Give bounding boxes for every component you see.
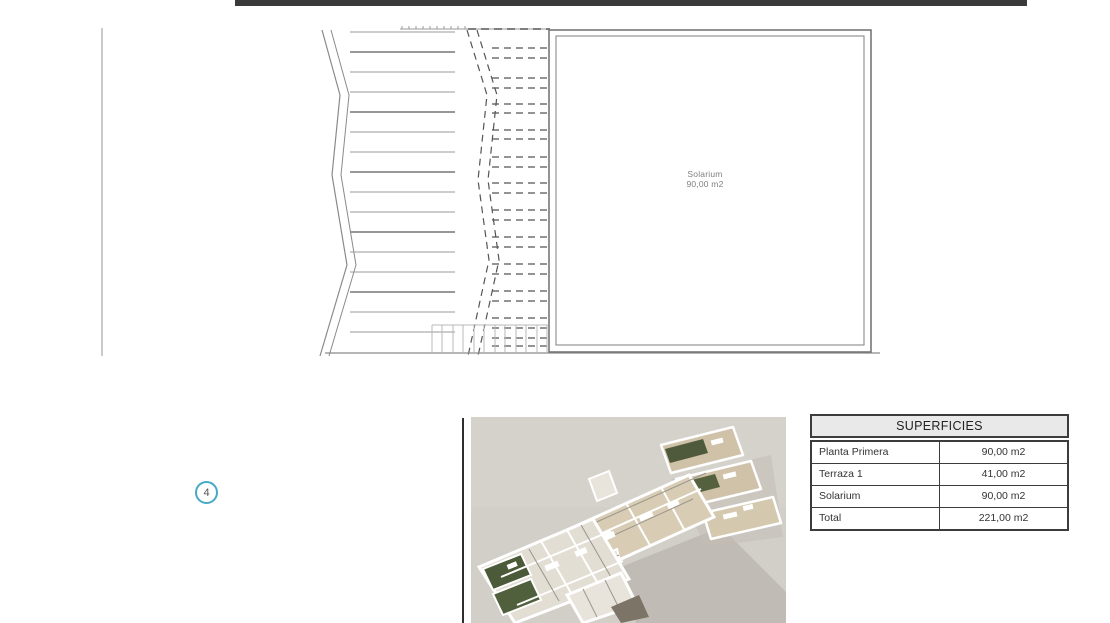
surfaces-table-title: SUPERFICIES bbox=[810, 414, 1069, 438]
render-divider-line bbox=[462, 418, 464, 623]
table-row: Planta Primera 90,00 m2 bbox=[812, 442, 1067, 464]
floor-plan-drawing bbox=[0, 0, 1110, 380]
hidden-roof-edge-outer bbox=[467, 30, 489, 356]
row-value: 90,00 m2 bbox=[940, 486, 1067, 507]
row-value: 221,00 m2 bbox=[940, 508, 1067, 529]
surfaces-table-body: Planta Primera 90,00 m2 Terraza 1 41,00 … bbox=[810, 440, 1069, 531]
hidden-slats bbox=[492, 48, 548, 346]
solarium-room-area: 90,00 m2 bbox=[655, 179, 755, 189]
row-label: Total bbox=[812, 508, 940, 529]
row-value: 41,00 m2 bbox=[940, 464, 1067, 485]
solarium-room-label: Solarium 90,00 m2 bbox=[655, 169, 755, 189]
row-value: 90,00 m2 bbox=[940, 442, 1067, 463]
row-label: Solarium bbox=[812, 486, 940, 507]
plan-number-marker: 4 bbox=[195, 481, 218, 504]
table-row: Solarium 90,00 m2 bbox=[812, 486, 1067, 508]
brochure-page: { "colors": { "top_bar": "#3a3a3a", "mar… bbox=[0, 0, 1110, 623]
solarium-outline-outer bbox=[549, 30, 871, 352]
roof-slats bbox=[350, 32, 455, 332]
plan-number: 4 bbox=[203, 487, 209, 499]
roof-slats-heavy bbox=[350, 52, 455, 292]
roof-edge-outer bbox=[320, 30, 347, 356]
row-label: Planta Primera bbox=[812, 442, 940, 463]
row-label: Terraza 1 bbox=[812, 464, 940, 485]
table-row: Terraza 1 41,00 m2 bbox=[812, 464, 1067, 486]
render-3d-floorplan bbox=[471, 417, 786, 623]
table-row: Total 221,00 m2 bbox=[812, 508, 1067, 529]
roof-edge-inner bbox=[329, 30, 356, 356]
solarium-room-name: Solarium bbox=[655, 169, 755, 179]
render-image bbox=[471, 417, 786, 623]
surfaces-table: SUPERFICIES Planta Primera 90,00 m2 Terr… bbox=[810, 414, 1069, 531]
